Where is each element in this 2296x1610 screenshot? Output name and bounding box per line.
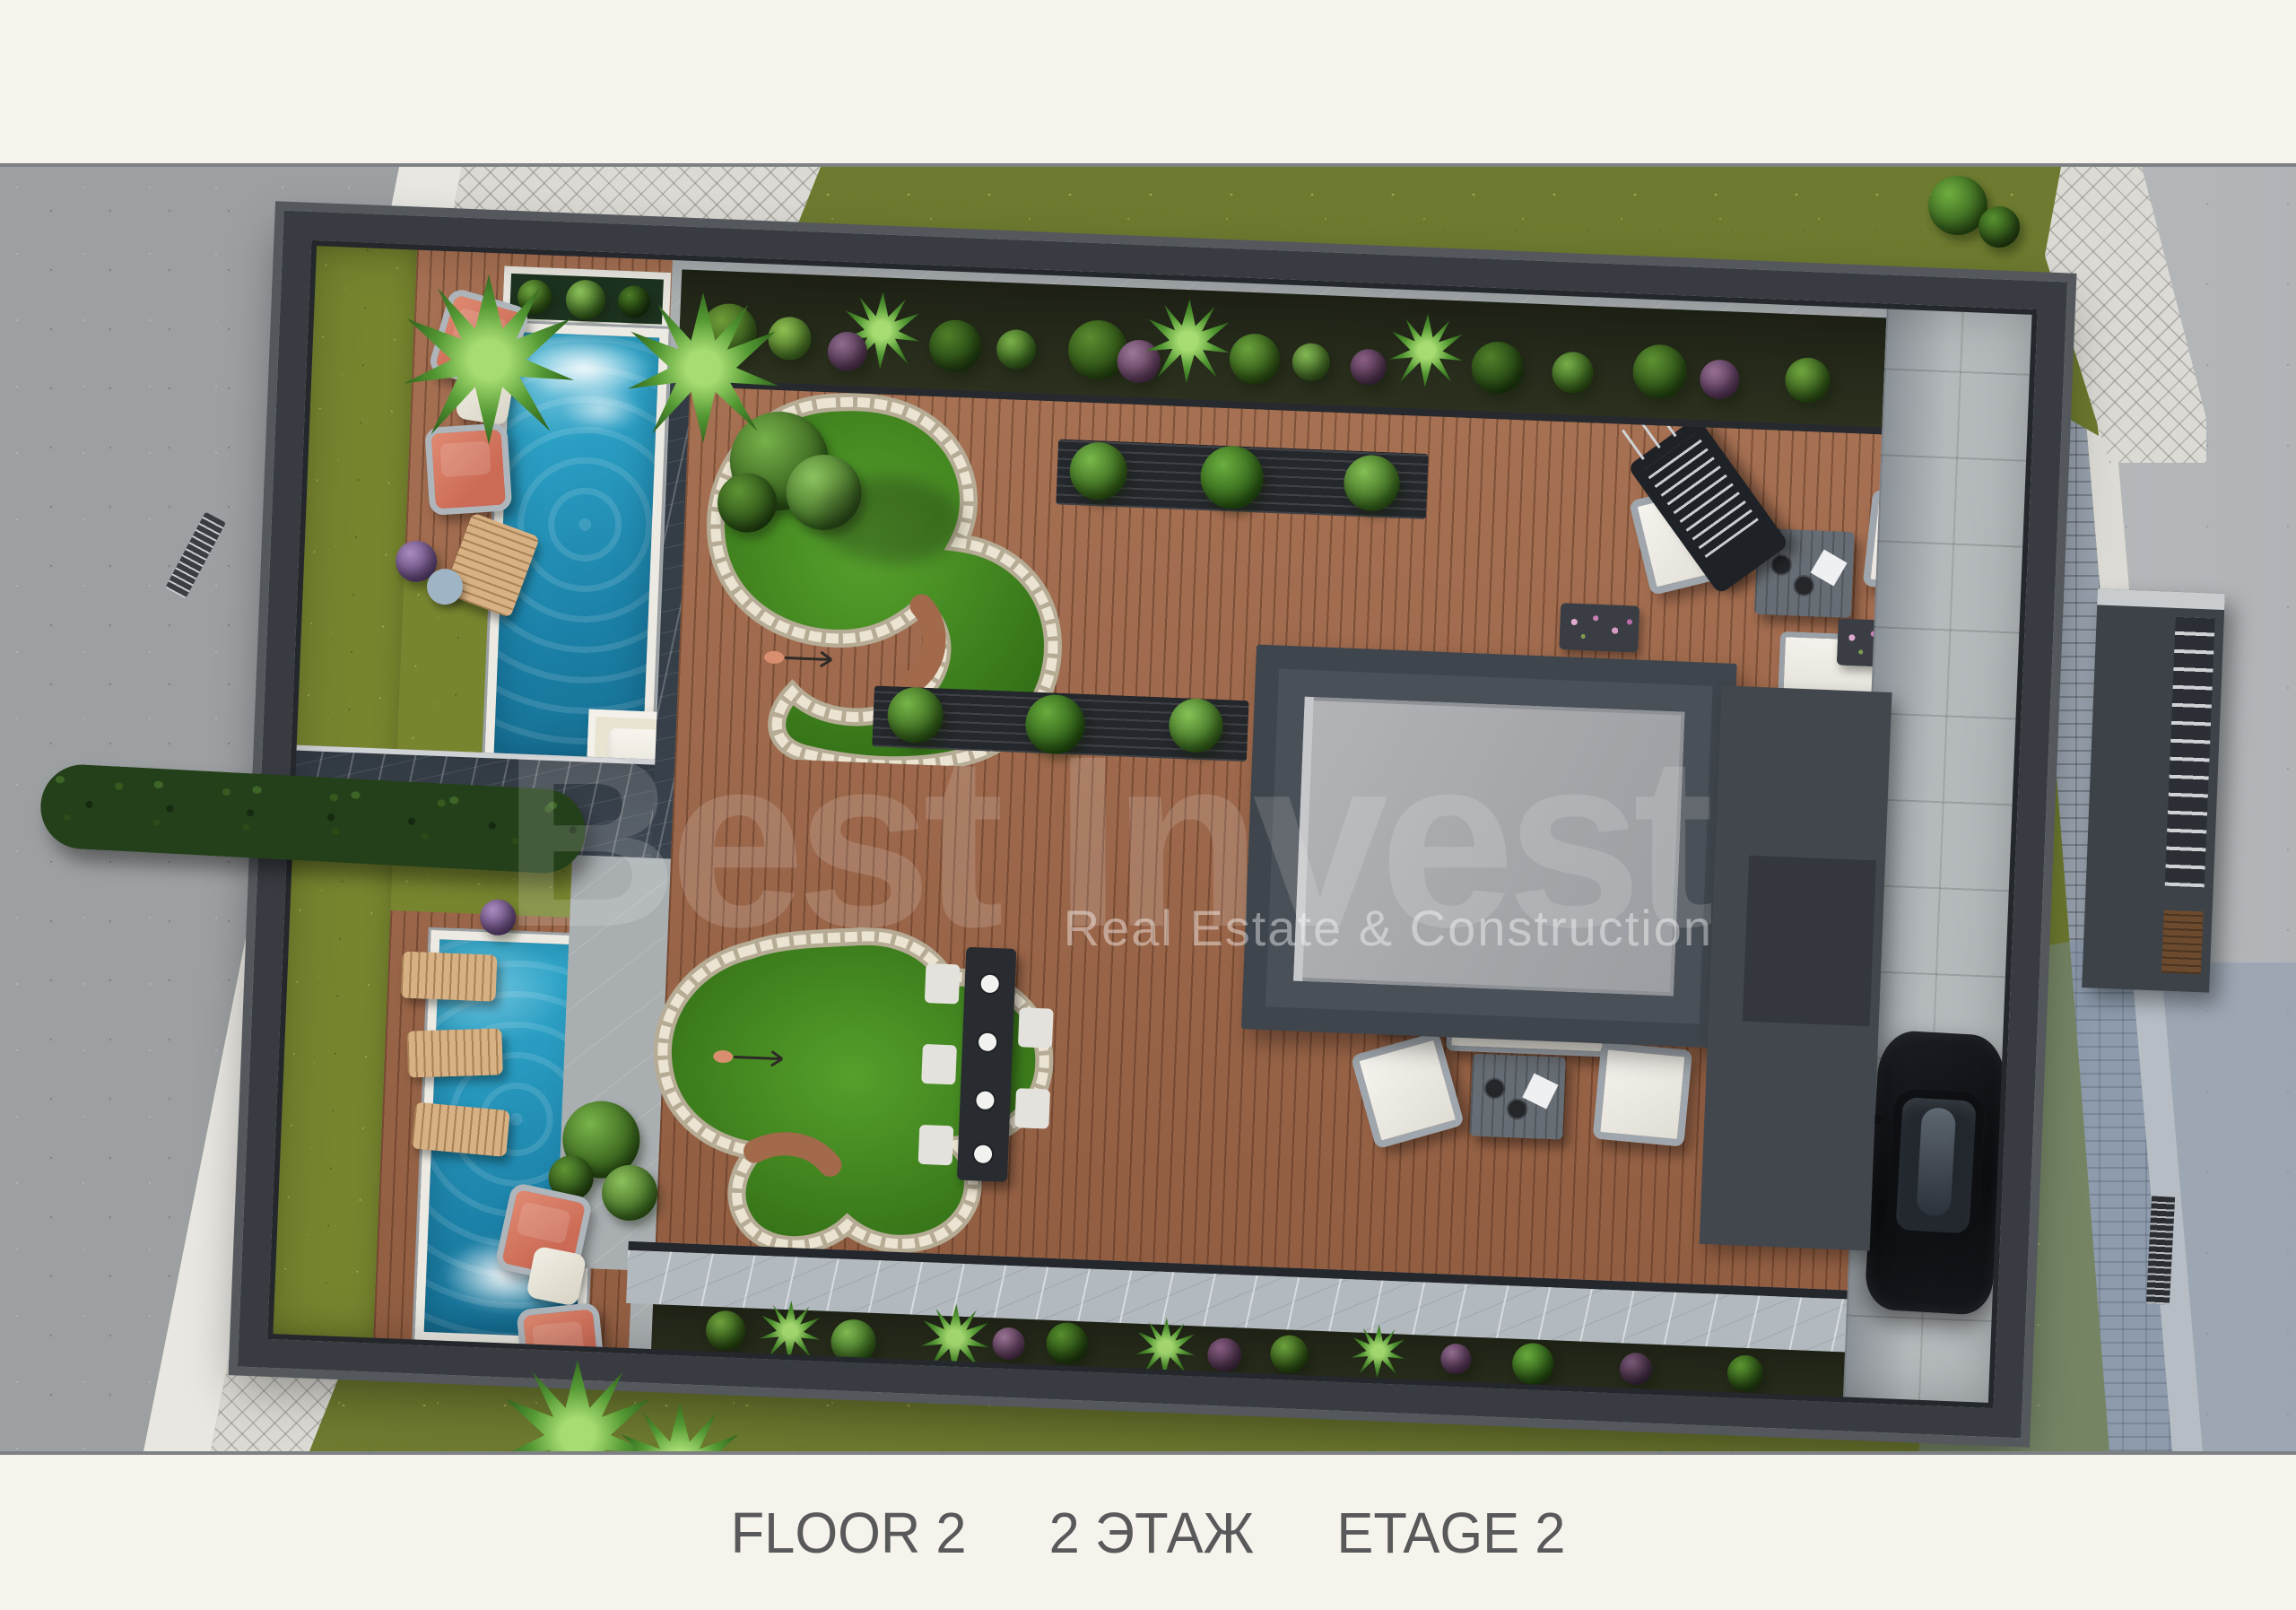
armchair (1593, 1042, 1693, 1147)
sun-lounger (401, 952, 498, 1002)
dining-chair (918, 1125, 954, 1165)
caption-floor-fr: ETAGE 2 (1336, 1500, 1565, 1566)
flower-planter (1559, 603, 1639, 652)
sun-lounger (406, 1028, 502, 1077)
bush (617, 285, 650, 318)
coral-armchair (424, 422, 512, 516)
car-mirror-icon (1995, 1122, 2009, 1131)
plate-icon (1485, 1079, 1504, 1098)
skewer-icon (1622, 430, 1645, 460)
dining-chair (921, 1044, 957, 1084)
garage-block (1743, 856, 1876, 1027)
planter-row (1056, 439, 1429, 519)
napkin (1522, 1073, 1558, 1109)
pool-foam (559, 384, 643, 434)
canopy-ladder-icon (2165, 617, 2215, 888)
plate-icon (1772, 556, 1791, 575)
watermark-tagline: Real Estate & Construction (1013, 899, 1713, 957)
dining-chair (1018, 1007, 1054, 1048)
top-margin-band (0, 0, 2296, 163)
canopy-wood-box (2161, 910, 2204, 975)
bush (1343, 454, 1400, 511)
caption-floor-en: FLOOR 2 (731, 1500, 967, 1566)
armchair (1351, 1031, 1465, 1150)
building-wing (1700, 685, 1892, 1250)
plate-icon (1795, 577, 1813, 596)
page: Best Invest Real Estate & Construction F… (0, 0, 2296, 1610)
sun-lounger (412, 1102, 510, 1158)
pool-planter (502, 265, 671, 331)
napkin (1811, 550, 1848, 587)
plate-icon (1508, 1100, 1526, 1118)
bush (1979, 206, 2020, 248)
render-area: Best Invest Real Estate & Construction (0, 163, 2296, 1455)
bush (1199, 445, 1265, 510)
bush (565, 279, 606, 320)
car-windshield-highlight (1916, 1107, 1956, 1216)
caption-band: FLOOR 2 2 ЭТАЖ ETAGE 2 (0, 1455, 2296, 1610)
patio-table (1469, 1054, 1566, 1140)
caption-floor-ru: 2 ЭТАЖ (1049, 1500, 1255, 1566)
dining-chair (1014, 1088, 1050, 1128)
pillow-table (526, 1246, 587, 1307)
bush (1068, 441, 1128, 501)
black-car (1864, 1030, 2007, 1317)
floor-caption: FLOOR 2 2 ЭТАЖ ETAGE 2 (46, 1455, 2250, 1610)
entrance-canopy (2082, 588, 2225, 992)
